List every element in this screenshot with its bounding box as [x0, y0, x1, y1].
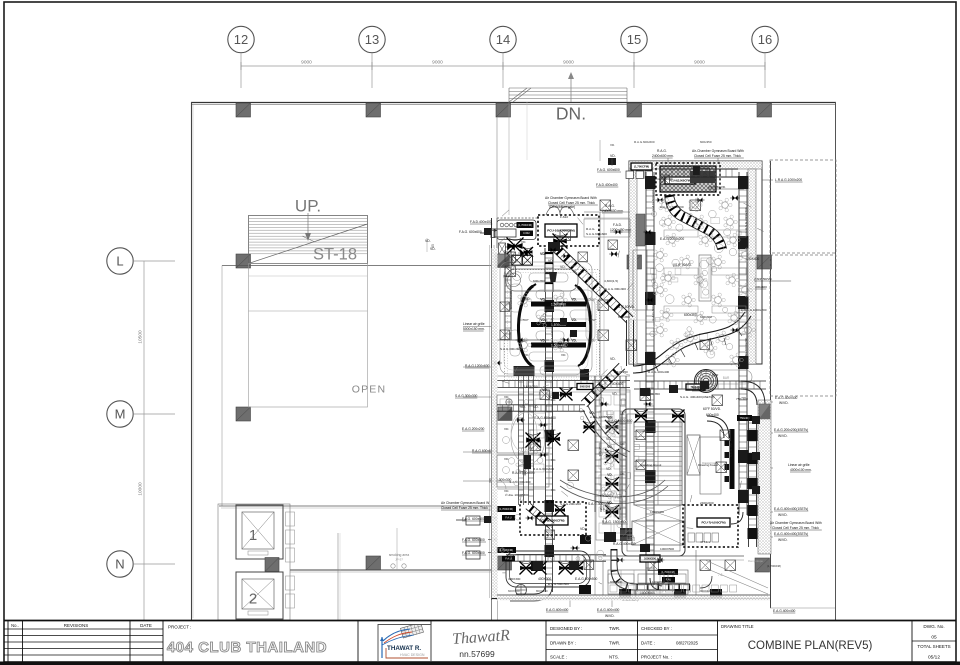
svg-text:9000: 9000 — [432, 60, 443, 66]
svg-text:(01)F 50/VD.: (01)F 50/VD. — [616, 305, 635, 309]
svg-text:R.A.G.600x600: R.A.G.600x600 — [472, 449, 495, 453]
svg-text:1000X500: 1000X500 — [660, 547, 674, 551]
svg-text:600X300: 600X300 — [508, 589, 520, 593]
svg-text:E.A.G.200x200: E.A.G.200x200 — [462, 427, 485, 431]
svg-text:5000x150 mm.: 5000x150 mm. — [463, 327, 485, 331]
svg-text:PROJECT :: PROJECT : — [168, 625, 191, 630]
svg-text:2400x600: 2400x600 — [700, 501, 714, 505]
svg-text:W/VD.: W/VD. — [778, 538, 788, 542]
svg-text:R.A.G.400x400: R.A.G.400x400 — [613, 542, 636, 546]
svg-text:VD.: VD. — [520, 405, 526, 409]
svg-text:JP-57: JP-57 — [395, 558, 403, 562]
svg-text:S.A.G.600x600: S.A.G.600x600 — [586, 232, 607, 236]
svg-text:VD.: VD. — [606, 437, 612, 441]
svg-text:60°F 50/VD.: 60°F 50/VD. — [703, 407, 721, 411]
svg-text:TWR.: TWR. — [609, 641, 620, 646]
svg-text:M: M — [115, 407, 126, 422]
svg-text:2400x600 mm.: 2400x600 mm. — [652, 154, 674, 158]
svg-text:PROJECT No. :: PROJECT No. : — [641, 655, 672, 660]
svg-text:VD.: VD. — [607, 445, 613, 449]
svg-text:TOTAL SHEETS: TOTAL SHEETS — [917, 644, 950, 649]
svg-text:S.A.G.300x300: S.A.G.300x300 — [500, 347, 521, 351]
svg-text:Air Chamber Gymnasm Board With: Air Chamber Gymnasm Board With — [545, 196, 597, 200]
svg-text:R.A.G.: R.A.G. — [605, 204, 615, 208]
svg-text:477.1 x: 477.1 x — [700, 540, 711, 544]
svg-text:SCALE :: SCALE : — [550, 655, 567, 660]
svg-text:F.A.G. 600x600: F.A.G. 600x600 — [462, 538, 485, 542]
svg-text:2: 2 — [249, 591, 257, 608]
svg-text:(1,700CFM): (1,700CFM) — [661, 571, 675, 574]
svg-text:12: 12 — [234, 32, 248, 47]
svg-text:F.A.G. 600x600: F.A.G. 600x600 — [597, 168, 620, 172]
svg-text:600x350: 600x350 — [700, 140, 712, 144]
svg-text:F.A.D.400x400: F.A.D.400x400 — [470, 220, 492, 224]
svg-text:VD.: VD. — [620, 442, 625, 446]
svg-text:W/VD.: W/VD. — [778, 513, 788, 517]
svg-text:VD.: VD. — [610, 143, 615, 147]
svg-text:R.A.G.600x600: R.A.G.600x600 — [634, 140, 655, 144]
svg-text:THAWAT R.: THAWAT R. — [387, 645, 421, 652]
svg-text:100X5300: 100X5300 — [650, 510, 664, 514]
svg-text:F.A.G. 600x600: F.A.G. 600x600 — [459, 230, 482, 234]
svg-text:F.A.G.600x600: F.A.G.600x600 — [652, 177, 673, 181]
svg-text:smoking area: smoking area — [389, 553, 409, 557]
svg-text:R.A.G.: R.A.G. — [586, 227, 595, 231]
svg-text:(01)F: (01)F — [503, 274, 511, 278]
svg-text:900X400: 900X400 — [700, 589, 712, 593]
svg-text:Drawing board: Drawing board — [698, 463, 718, 467]
svg-text:F-622: F-622 — [560, 215, 568, 219]
svg-text:DATE: DATE — [140, 623, 152, 628]
svg-text:1: 1 — [249, 527, 257, 544]
svg-text:S.A.G.200x200: S.A.G.200x200 — [560, 502, 581, 506]
svg-text:VD.: VD. — [551, 488, 556, 492]
svg-text:15: 15 — [627, 32, 641, 47]
svg-text:L: L — [116, 254, 123, 269]
svg-text:9000: 9000 — [301, 60, 312, 66]
svg-text:nn.57699: nn.57699 — [459, 649, 495, 659]
svg-text:F.A.D.400x400: F.A.D.400x400 — [596, 183, 618, 187]
svg-text:VD.: VD. — [430, 247, 436, 251]
svg-text:E.A.G.500x500: E.A.G.500x500 — [548, 582, 569, 586]
svg-text:Air Chamber Gymnasm Board W: Air Chamber Gymnasm Board W — [441, 501, 490, 505]
svg-text:TWR.: TWR. — [609, 626, 620, 631]
svg-text:HVAC DESIGN: HVAC DESIGN — [400, 653, 425, 657]
svg-text:Linear air grille: Linear air grille — [463, 322, 485, 326]
svg-text:VD.: VD. — [612, 392, 618, 396]
svg-text:7.2: 7.2 — [718, 573, 723, 577]
svg-text:400X300: 400X300 — [508, 577, 521, 581]
svg-text:600x400: 600x400 — [706, 413, 719, 417]
svg-text:400x400: 400x400 — [755, 285, 767, 289]
svg-text:S.A.G. 300x300: S.A.G. 300x300 — [509, 480, 531, 484]
svg-text:VD.: VD. — [425, 239, 431, 243]
svg-text:∅3/4" 50/VD.: ∅3/4" 50/VD. — [708, 185, 726, 189]
svg-text:VD.: VD. — [533, 405, 539, 409]
svg-text:VD.: VD. — [504, 427, 509, 431]
svg-text:E.A.G.300x600(3): E.A.G.300x600(3) — [550, 318, 554, 343]
svg-text:∅550*: ∅550* — [588, 338, 597, 342]
svg-text:10000: 10000 — [138, 482, 144, 496]
svg-text:VD.: VD. — [504, 489, 509, 493]
svg-text:VD.: VD. — [524, 353, 529, 357]
svg-text:S.A.G.300x300: S.A.G.300x300 — [600, 507, 621, 511]
svg-text:R.A.G.600x600: R.A.G.600x600 — [533, 467, 554, 471]
svg-text:DN.: DN. — [556, 104, 586, 124]
svg-text:F.A.G. 600x600: F.A.G. 600x600 — [462, 551, 485, 555]
svg-text:VD.: VD. — [540, 252, 546, 256]
svg-text:S.A.G.300x300: S.A.G.300x300 — [588, 502, 611, 506]
svg-text:14: 14 — [496, 32, 510, 47]
svg-text:DWG. No.: DWG. No. — [923, 624, 944, 629]
svg-text:W/VD.: W/VD. — [605, 614, 615, 618]
svg-text:1000X500: 1000X500 — [640, 591, 655, 595]
svg-text:ST-18: ST-18 — [313, 246, 357, 264]
svg-text:∅550*: ∅550* — [588, 318, 597, 322]
svg-text:600x350: 600x350 — [648, 392, 660, 396]
svg-text:9000: 9000 — [694, 60, 705, 66]
svg-text:500X300: 500X300 — [580, 384, 591, 388]
svg-text:Closed Cell Foam 25 mm. Thick: Closed Cell Foam 25 mm. Thick — [772, 526, 819, 530]
svg-text:(1,700CFM): (1,700CFM) — [767, 564, 781, 568]
svg-text:Linear air grille: Linear air grille — [788, 463, 810, 467]
svg-text:VD.: VD. — [610, 154, 616, 158]
svg-text:DRAWING TITLE: DRAWING TITLE — [721, 624, 754, 629]
svg-text:PCU-7(4,000CFM): PCU-7(4,000CFM) — [701, 521, 725, 525]
svg-text:E.A.G.400x400: E.A.G.400x400 — [773, 609, 796, 613]
svg-text:E.A.G.3000x200: E.A.G.3000x200 — [550, 418, 554, 441]
svg-text:Closed Cell Foam 25 mm. Thick: Closed Cell Foam 25 mm. Thick — [694, 154, 741, 158]
svg-text:F.602: F.602 — [523, 231, 530, 235]
svg-text:05/12: 05/12 — [928, 655, 940, 661]
svg-text:(1,700CFM): (1,700CFM) — [634, 165, 649, 169]
svg-text:VD.: VD. — [521, 240, 526, 244]
svg-text:VD.: VD. — [580, 527, 586, 531]
svg-text:4000x100 mm.: 4000x100 mm. — [790, 468, 812, 472]
svg-text:2400x600 mm.: 2400x600 mm. — [602, 209, 624, 213]
svg-text:VD.: VD. — [560, 265, 566, 269]
svg-text:VD.: VD. — [504, 457, 509, 461]
svg-text:NTS.: NTS. — [609, 655, 619, 660]
svg-text:CHECKED BY :: CHECKED BY : — [641, 626, 672, 631]
svg-text:S.A.G.300x300: S.A.G.300x300 — [605, 287, 626, 291]
svg-text:∅ dia. 100X5300: ∅ dia. 100X5300 — [505, 493, 529, 497]
svg-text:N: N — [115, 557, 124, 572]
svg-text:BAR: BAR — [712, 373, 719, 377]
svg-text:No..: No.. — [11, 623, 19, 628]
svg-text:2,615/250: 2,615/250 — [614, 370, 628, 374]
svg-text:DESIGNED BY :: DESIGNED BY : — [550, 626, 582, 631]
svg-text:Air-Chamber Gymnasm Board With: Air-Chamber Gymnasm Board With — [692, 149, 744, 153]
svg-text:W/VD.: W/VD. — [779, 401, 789, 405]
svg-text:G.A.R: G.A.R — [700, 369, 709, 373]
svg-text:S.A.G. 400x400(4SETs3): S.A.G. 400x400(4SETs3) — [680, 395, 715, 399]
svg-text:∅3/4" 50/VD.: ∅3/4" 50/VD. — [754, 277, 773, 281]
svg-text:VD.: VD. — [610, 357, 616, 361]
svg-text:900X400: 900X400 — [610, 580, 623, 584]
svg-text:E.A.G.300x600: E.A.G.300x600 — [651, 299, 655, 320]
svg-text:VD.: VD. — [540, 318, 546, 322]
svg-text:Standing layout: Standing layout — [640, 463, 661, 467]
svg-text:E.A.G.1500x600: E.A.G.1500x600 — [550, 508, 554, 531]
svg-text:F.AU: F.AU — [666, 579, 672, 582]
svg-text:F.A.U: F.A.U — [505, 557, 511, 561]
svg-text:Closed Cell Foam 25 mm. Thick: Closed Cell Foam 25 mm. Thick — [441, 506, 488, 510]
svg-text:R.A.G.: R.A.G. — [657, 149, 667, 153]
svg-text:05: 05 — [931, 635, 937, 641]
svg-text:F.A.D.: F.A.D. — [613, 223, 622, 227]
svg-text:Air Chamber Gymnasm Board With: Air Chamber Gymnasm Board With — [770, 521, 822, 525]
svg-text:E.A.G.500x500: E.A.G.500x500 — [575, 577, 598, 581]
svg-text:170x(450): 170x(450) — [598, 443, 602, 457]
svg-text:OPEN: OPEN — [352, 384, 387, 396]
svg-text:VD.: VD. — [620, 412, 625, 416]
svg-text:700X400: 700X400 — [610, 382, 623, 386]
svg-text:F.A.U: F.A.U — [505, 516, 511, 520]
svg-text:600x350: 600x350 — [618, 315, 630, 319]
svg-text:VD.: VD. — [620, 472, 625, 476]
svg-text:S.A.G.300x300: S.A.G.300x300 — [455, 394, 478, 398]
svg-text:600x350: 600x350 — [533, 279, 545, 283]
svg-text:(DExhibition gate): (DExhibition gate) — [549, 205, 575, 209]
svg-text:2,615/250: 2,615/250 — [523, 385, 538, 389]
svg-text:⌀ dia. 100X5300: ⌀ dia. 100X5300 — [590, 415, 613, 419]
svg-text:13: 13 — [365, 32, 379, 47]
svg-text:E.A.G.400x400: E.A.G.400x400 — [775, 396, 798, 400]
svg-text:L.R.AG.1000x200: L.R.AG.1000x200 — [744, 337, 748, 362]
svg-text:600x600x600: 600x600x600 — [509, 290, 513, 309]
svg-text:VD.: VD. — [504, 395, 509, 399]
svg-text:VD.: VD. — [561, 244, 566, 248]
svg-text:DATE :: DATE : — [641, 641, 655, 646]
svg-text:VD.: VD. — [561, 353, 566, 357]
svg-text:E.A.G.300x600: E.A.G.300x600 — [651, 189, 655, 210]
svg-text:400X300: 400X300 — [538, 577, 551, 581]
svg-text:F.A.G. 600x600: F.A.G. 600x600 — [462, 517, 485, 521]
svg-text:DRAWN BY :: DRAWN BY : — [550, 641, 576, 646]
svg-text:(1,700CFM): (1,700CFM) — [518, 223, 532, 227]
svg-text:VD.: VD. — [551, 398, 556, 402]
svg-text:1200x450 mm.: 1200x450 mm. — [610, 228, 632, 232]
svg-text:VD.: VD. — [610, 247, 615, 251]
svg-text:∅550*: ∅550* — [520, 318, 529, 322]
svg-text:S.A.G.450: S.A.G.450 — [729, 443, 733, 458]
svg-text:VD.: VD. — [540, 297, 546, 301]
svg-text:VD.: VD. — [571, 318, 577, 322]
svg-text:L.R.A.G.1000x200: L.R.A.G.1000x200 — [741, 308, 767, 312]
svg-text:L.R.A.G.1000x200: L.R.A.G.1000x200 — [775, 178, 802, 182]
svg-text:BAR: BAR — [723, 376, 730, 380]
svg-text:08/27/2025: 08/27/2025 — [676, 641, 699, 646]
svg-text:750x400: 750x400 — [736, 397, 748, 401]
svg-text:E.A.G.200x200(4SETs): E.A.G.200x200(4SETs) — [774, 428, 808, 432]
svg-text:VD.: VD. — [548, 259, 554, 263]
svg-text:E.A.G.2000x200: E.A.G.2000x200 — [660, 237, 684, 241]
svg-text:4,300(1,5): 4,300(1,5) — [604, 279, 618, 283]
svg-text:W/VD.: W/VD. — [778, 434, 788, 438]
svg-text:404 CLUB THAILAND: 404 CLUB THAILAND — [167, 639, 327, 656]
svg-text:R.A.G.400x400: R.A.G.400x400 — [648, 370, 669, 374]
svg-text:COMBINE PLAN(REV5): COMBINE PLAN(REV5) — [748, 640, 873, 652]
svg-text:E.A.G.400x400: E.A.G.400x400 — [546, 608, 569, 612]
svg-text:VD.: VD. — [571, 297, 577, 301]
svg-text:REVISIONS: REVISIONS — [64, 623, 89, 628]
svg-text:R.A.G.1200x600: R.A.G.1200x600 — [465, 364, 490, 368]
svg-text:16: 16 — [758, 32, 772, 47]
svg-text:∅550*: ∅550* — [588, 297, 597, 301]
svg-text:E.A.G.400x400(3SETs): E.A.G.400x400(3SETs) — [774, 532, 808, 536]
svg-text:9000: 9000 — [563, 60, 574, 66]
svg-text:300x400: 300x400 — [523, 464, 527, 476]
svg-text:10500: 10500 — [138, 330, 144, 344]
svg-text:Ramp slope: Ramp slope — [748, 559, 763, 563]
svg-text:E.A.G.400x400: E.A.G.400x400 — [597, 608, 620, 612]
svg-text:E.A.G.400x400(1SETs): E.A.G.400x400(1SETs) — [774, 507, 808, 511]
svg-text:L.R.S.G.2000x200: L.R.S.G.2000x200 — [744, 207, 748, 233]
svg-text:(1,700CFM): (1,700CFM) — [499, 507, 513, 511]
svg-text:1000X500: 1000X500 — [652, 580, 666, 584]
svg-text:UP.: UP. — [295, 197, 321, 216]
svg-text:S.A.G.300x300: S.A.G.300x300 — [557, 342, 580, 346]
svg-text:VD.: VD. — [551, 458, 556, 462]
